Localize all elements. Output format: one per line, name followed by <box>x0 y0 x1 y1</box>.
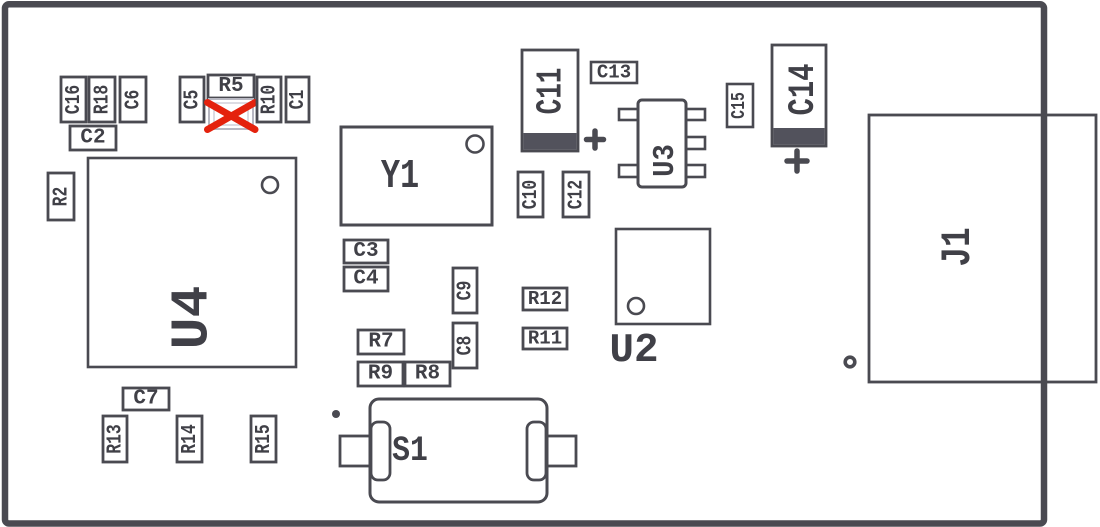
svg-text:R2: R2 <box>49 187 74 207</box>
svg-text:C15: C15 <box>729 92 750 119</box>
svg-text:R7: R7 <box>368 331 393 354</box>
svg-text:R8: R8 <box>415 363 440 386</box>
svg-text:R5: R5 <box>218 75 243 98</box>
svg-text:C10: C10 <box>518 180 543 209</box>
svg-text:C11: C11 <box>532 68 572 115</box>
svg-text:R10: R10 <box>257 85 282 114</box>
svg-text:C5: C5 <box>180 90 205 110</box>
svg-text:U3: U3 <box>647 144 682 177</box>
svg-text:C9: C9 <box>453 281 478 301</box>
svg-text:U4: U4 <box>163 286 223 350</box>
svg-text:C3: C3 <box>353 240 378 263</box>
svg-text:C2: C2 <box>80 127 105 150</box>
svg-text:C1: C1 <box>285 90 310 110</box>
svg-text:R13: R13 <box>103 424 128 453</box>
svg-text:R9: R9 <box>368 363 393 386</box>
svg-text:C4: C4 <box>353 268 378 291</box>
svg-text:J1: J1 <box>936 227 983 266</box>
svg-text:C14: C14 <box>782 64 824 116</box>
svg-text:R18: R18 <box>90 85 115 114</box>
svg-text:R15: R15 <box>251 424 276 453</box>
svg-text:C12: C12 <box>564 180 589 209</box>
svg-text:S1: S1 <box>392 431 428 471</box>
svg-text:C7: C7 <box>133 388 158 411</box>
svg-text:Y1: Y1 <box>381 154 419 201</box>
svg-text:C8: C8 <box>453 336 478 356</box>
svg-text:C6: C6 <box>121 90 146 110</box>
svg-text:R11: R11 <box>528 328 562 350</box>
svg-text:C13: C13 <box>597 62 631 84</box>
svg-text:R14: R14 <box>177 424 202 453</box>
svg-text:R12: R12 <box>528 288 562 310</box>
svg-text:U2: U2 <box>609 328 658 374</box>
svg-text:C16: C16 <box>61 85 86 114</box>
